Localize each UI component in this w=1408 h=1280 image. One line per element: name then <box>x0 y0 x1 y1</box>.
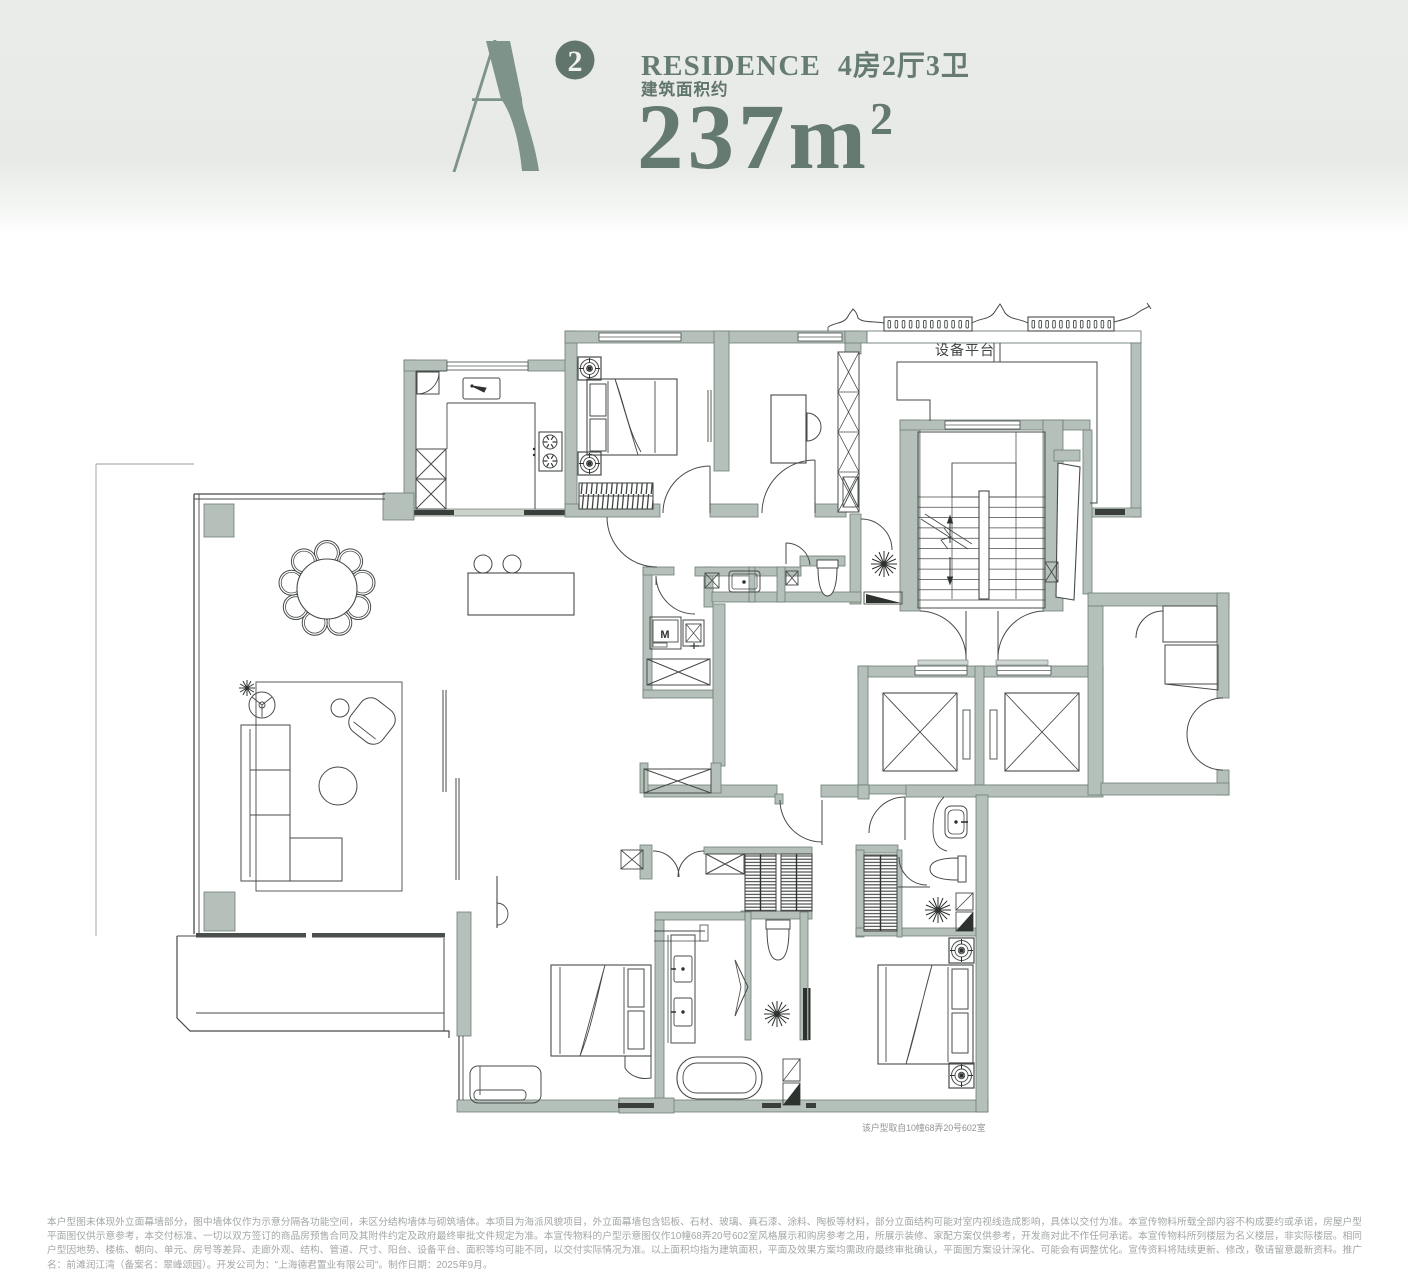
svg-text:设备平台: 设备平台 <box>935 342 995 358</box>
svg-text:M: M <box>660 629 669 641</box>
